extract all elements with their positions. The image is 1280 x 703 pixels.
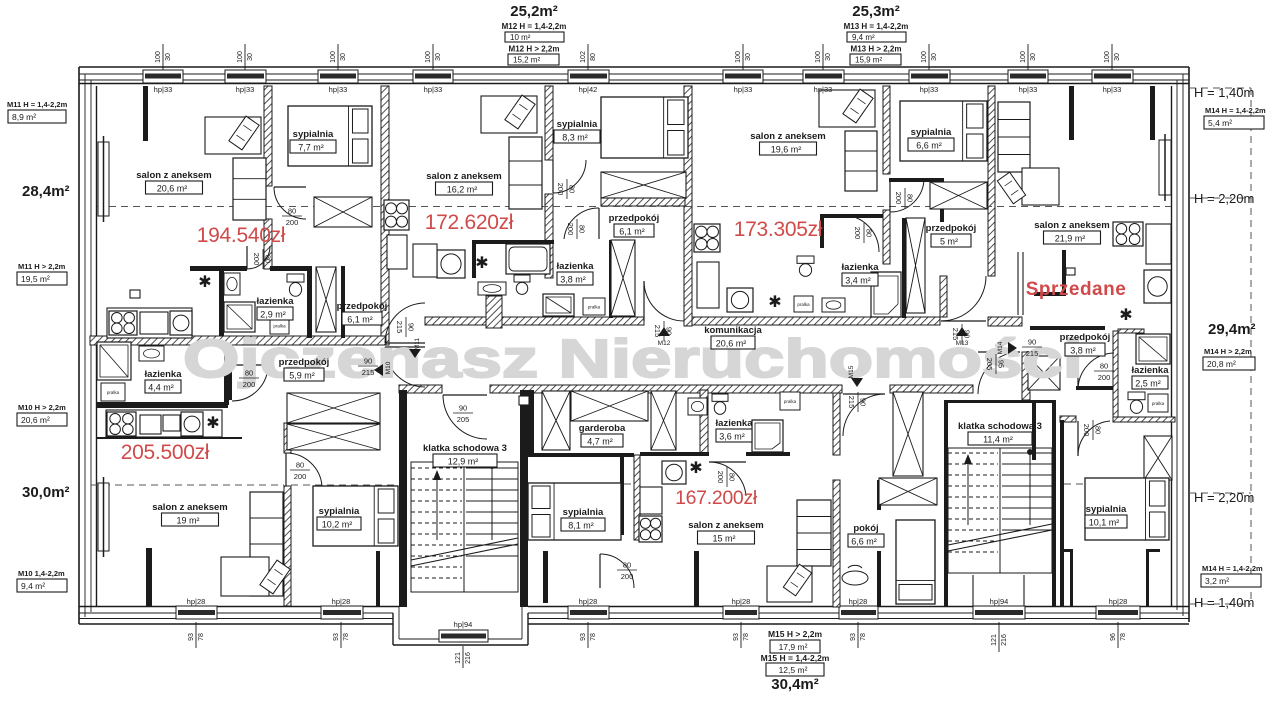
svg-text:hp|28: hp|28 — [732, 597, 751, 606]
svg-text:klatka schodowa 3: klatka schodowa 3 — [423, 443, 507, 454]
svg-text:90: 90 — [407, 323, 416, 331]
svg-text:5 m²: 5 m² — [940, 237, 958, 247]
svg-text:93: 93 — [733, 633, 740, 641]
svg-text:✱: ✱ — [475, 255, 488, 272]
svg-text:sypialnia: sypialnia — [293, 129, 334, 140]
svg-text:78: 78 — [743, 633, 750, 641]
svg-text:78: 78 — [860, 633, 867, 641]
svg-text:93: 93 — [188, 633, 195, 641]
svg-text:M13: M13 — [956, 340, 969, 347]
svg-text:8,9 m²: 8,9 m² — [12, 112, 36, 122]
svg-text:216: 216 — [465, 652, 472, 664]
svg-text:20,6 m²: 20,6 m² — [716, 339, 747, 349]
svg-text:5,4 m²: 5,4 m² — [1208, 118, 1232, 128]
svg-text:100: 100 — [425, 51, 432, 63]
svg-text:200: 200 — [252, 253, 261, 266]
svg-text:pralka: pralka — [588, 305, 601, 310]
svg-text:garderoba: garderoba — [579, 423, 626, 434]
svg-text:30: 30 — [247, 53, 254, 61]
svg-text:5,9 m²: 5,9 m² — [289, 371, 315, 381]
svg-text:✱: ✱ — [206, 415, 219, 432]
svg-text:78: 78 — [198, 633, 205, 641]
svg-text:salon z aneksem: salon z aneksem — [750, 131, 826, 142]
svg-text:102: 102 — [580, 51, 587, 63]
svg-text:205: 205 — [985, 358, 994, 371]
svg-text:30: 30 — [931, 53, 938, 61]
svg-text:30: 30 — [825, 53, 832, 61]
svg-text:hp|33: hp|33 — [814, 85, 833, 94]
svg-text:salon z aneksem: salon z aneksem — [426, 171, 502, 182]
svg-text:30: 30 — [435, 53, 442, 61]
svg-text:16,2 m²: 16,2 m² — [447, 185, 478, 195]
svg-text:200: 200 — [716, 471, 725, 484]
svg-text:M14 H = 1,4-2,2m: M14 H = 1,4-2,2m — [1202, 564, 1263, 573]
svg-text:11,4 m²: 11,4 m² — [983, 435, 1013, 445]
svg-text:10,2 m²: 10,2 m² — [322, 520, 353, 530]
svg-text:M11 H = 1,4-2,2m: M11 H = 1,4-2,2m — [7, 100, 68, 109]
svg-text:19,6 m²: 19,6 m² — [771, 145, 802, 155]
svg-text:hp|28: hp|28 — [332, 597, 351, 606]
svg-text:4,4 m²: 4,4 m² — [148, 383, 174, 393]
svg-text:H = 1,40m: H = 1,40m — [1194, 85, 1254, 100]
svg-text:6,6 m²: 6,6 m² — [916, 141, 942, 151]
svg-text:93: 93 — [580, 633, 587, 641]
svg-text:215: 215 — [847, 396, 856, 409]
svg-text:4,7 m²: 4,7 m² — [587, 437, 613, 447]
svg-text:sypialnia: sypialnia — [1086, 504, 1127, 515]
svg-text:25,2m²: 25,2m² — [510, 3, 558, 20]
svg-text:80: 80 — [906, 194, 915, 202]
svg-text:hp|33: hp|33 — [329, 85, 348, 94]
svg-text:80: 80 — [245, 369, 253, 378]
svg-text:205.500zł: 205.500zł — [121, 441, 210, 464]
svg-text:hp|42: hp|42 — [579, 85, 598, 94]
svg-text:pokój: pokój — [853, 523, 878, 534]
svg-text:2,9 m²: 2,9 m² — [260, 310, 286, 320]
svg-text:167.200zł: 167.200zł — [675, 487, 758, 509]
svg-text:200: 200 — [566, 223, 575, 236]
svg-text:salon z aneksem: salon z aneksem — [152, 502, 228, 513]
svg-text:121: 121 — [991, 634, 998, 646]
svg-text:6,1 m²: 6,1 m² — [619, 227, 645, 237]
svg-text:M13 H = 1,4-2,2m: M13 H = 1,4-2,2m — [844, 22, 909, 31]
svg-text:200: 200 — [294, 472, 307, 481]
svg-text:200: 200 — [243, 380, 256, 389]
svg-text:80: 80 — [264, 255, 273, 263]
svg-text:28,4m²: 28,4m² — [22, 183, 70, 200]
svg-text:20,6 m²: 20,6 m² — [157, 184, 188, 194]
svg-text:hp|28: hp|28 — [1109, 597, 1128, 606]
svg-text:łazienka: łazienka — [842, 262, 880, 273]
svg-text:100: 100 — [1104, 51, 1111, 63]
svg-text:200: 200 — [1082, 424, 1091, 437]
svg-text:M11 H > 2,2m: M11 H > 2,2m — [18, 262, 66, 271]
svg-text:sypialnia: sypialnia — [319, 506, 360, 517]
svg-text:30,4m²: 30,4m² — [771, 676, 819, 693]
svg-text:hp|28: hp|28 — [579, 597, 598, 606]
svg-text:80: 80 — [590, 53, 597, 61]
svg-text:hp|33: hp|33 — [920, 85, 939, 94]
svg-text:30: 30 — [165, 53, 172, 61]
svg-text:12,9 m²: 12,9 m² — [448, 457, 479, 467]
svg-text:łazienka: łazienka — [1132, 365, 1170, 376]
svg-text:100: 100 — [237, 51, 244, 63]
svg-text:90: 90 — [859, 398, 868, 406]
svg-text:80: 80 — [1100, 362, 1108, 371]
svg-text:✱: ✱ — [768, 294, 781, 311]
svg-text:172.620zł: 172.620zł — [425, 211, 514, 234]
svg-text:200: 200 — [1098, 373, 1111, 382]
svg-text:sypialnia: sypialnia — [911, 127, 952, 138]
svg-text:30: 30 — [1030, 53, 1037, 61]
svg-text:121: 121 — [455, 652, 462, 664]
svg-text:8,3 m²: 8,3 m² — [562, 133, 588, 143]
svg-text:łazienka: łazienka — [557, 261, 595, 272]
svg-text:100: 100 — [1020, 51, 1027, 63]
svg-text:30: 30 — [745, 53, 752, 61]
svg-text:216: 216 — [1001, 634, 1008, 646]
svg-text:M14: M14 — [997, 341, 1004, 354]
svg-text:194.540zł: 194.540zł — [197, 224, 286, 247]
svg-text:M10 1,4-2,2m: M10 1,4-2,2m — [18, 569, 65, 578]
svg-text:100: 100 — [735, 51, 742, 63]
svg-text:80: 80 — [568, 185, 577, 193]
svg-text:80: 80 — [865, 229, 874, 237]
svg-text:90: 90 — [1028, 338, 1036, 347]
svg-text:3,8 m²: 3,8 m² — [560, 275, 586, 285]
svg-text:80: 80 — [623, 561, 631, 570]
svg-text:✱: ✱ — [689, 460, 702, 477]
svg-text:klatka schodowa 3: klatka schodowa 3 — [958, 421, 1042, 432]
svg-text:21,9 m²: 21,9 m² — [1055, 234, 1086, 244]
svg-text:25,3m²: 25,3m² — [852, 3, 900, 20]
svg-text:205: 205 — [457, 415, 470, 424]
svg-text:215: 215 — [362, 368, 375, 377]
svg-text:✱: ✱ — [1119, 307, 1132, 324]
svg-text:hp|33: hp|33 — [734, 85, 753, 94]
svg-text:hp|28: hp|28 — [187, 597, 206, 606]
svg-text:3,6 m²: 3,6 m² — [719, 432, 745, 442]
svg-text:H = 2,20m: H = 2,20m — [1194, 191, 1254, 206]
svg-text:hp|33: hp|33 — [154, 85, 173, 94]
svg-text:M13 H > 2,2m: M13 H > 2,2m — [851, 45, 902, 54]
svg-text:komunikacja: komunikacja — [704, 325, 762, 336]
svg-text:80: 80 — [296, 461, 304, 470]
svg-text:2,5 m²: 2,5 m² — [1135, 379, 1161, 389]
svg-text:salon z aneksem: salon z aneksem — [1034, 220, 1110, 231]
svg-text:sypialnia: sypialnia — [557, 119, 598, 130]
svg-text:M15 H > 2,2m: M15 H > 2,2m — [768, 629, 823, 639]
svg-text:przedpokój: przedpokój — [279, 357, 330, 368]
svg-text:hp|94: hp|94 — [454, 620, 473, 629]
svg-text:80: 80 — [288, 207, 296, 216]
svg-text:200: 200 — [286, 218, 299, 227]
svg-text:M11: M11 — [414, 338, 421, 351]
svg-text:przedpokój: przedpokój — [1060, 332, 1111, 343]
svg-text:H = 1,40m: H = 1,40m — [1194, 595, 1254, 610]
svg-text:hp|33: hp|33 — [1103, 85, 1122, 94]
svg-text:3,4 m²: 3,4 m² — [845, 276, 871, 286]
svg-text:78: 78 — [343, 633, 350, 641]
svg-text:96: 96 — [1110, 633, 1117, 641]
svg-text:łazienka: łazienka — [716, 418, 754, 429]
svg-text:przedpokój: przedpokój — [926, 223, 977, 234]
svg-text:29,4m²: 29,4m² — [1208, 321, 1256, 338]
svg-text:✱: ✱ — [198, 274, 211, 291]
svg-text:hp|33: hp|33 — [236, 85, 255, 94]
svg-text:100: 100 — [330, 51, 337, 63]
svg-text:H = 2,20m: H = 2,20m — [1194, 490, 1254, 505]
svg-text:hp|33: hp|33 — [1019, 85, 1038, 94]
svg-text:19 m²: 19 m² — [176, 516, 199, 526]
svg-text:93: 93 — [333, 633, 340, 641]
svg-text:15,2 m²: 15,2 m² — [513, 56, 540, 65]
svg-text:6,1 m²: 6,1 m² — [347, 315, 373, 325]
svg-text:3,2 m²: 3,2 m² — [1205, 576, 1229, 586]
svg-text:10,1 m²: 10,1 m² — [1089, 518, 1120, 528]
svg-text:pralka: pralka — [784, 399, 797, 404]
svg-text:M12 H = 1,4-2,2m: M12 H = 1,4-2,2m — [502, 22, 567, 31]
svg-text:9,4 m²: 9,4 m² — [21, 581, 45, 591]
svg-text:pralka: pralka — [797, 302, 810, 307]
svg-text:M14 H = 1,4-2,2m: M14 H = 1,4-2,2m — [1205, 106, 1266, 115]
svg-text:95: 95 — [997, 360, 1006, 368]
svg-text:6,6 m²: 6,6 m² — [851, 537, 877, 547]
svg-text:215: 215 — [1026, 349, 1039, 358]
svg-text:100: 100 — [815, 51, 822, 63]
svg-text:200: 200 — [853, 227, 862, 240]
svg-text:20,8 m²: 20,8 m² — [1207, 359, 1236, 369]
svg-text:80: 80 — [1094, 426, 1103, 434]
svg-text:hp|28: hp|28 — [849, 597, 868, 606]
svg-text:przedpokój: przedpokój — [609, 213, 660, 224]
svg-text:przedpokój: przedpokój — [337, 301, 388, 312]
svg-text:pralka: pralka — [1152, 401, 1165, 406]
svg-text:M12: M12 — [658, 340, 671, 347]
svg-text:173.305zł: 173.305zł — [734, 218, 823, 241]
svg-text:93: 93 — [850, 633, 857, 641]
svg-text:3,8 m²: 3,8 m² — [1070, 346, 1096, 356]
svg-text:20,6 m²: 20,6 m² — [21, 415, 50, 425]
svg-text:9,4 m²: 9,4 m² — [852, 33, 875, 42]
svg-text:215: 215 — [395, 321, 404, 334]
svg-text:200: 200 — [621, 572, 634, 581]
svg-text:80: 80 — [578, 225, 587, 233]
svg-text:200: 200 — [894, 192, 903, 205]
svg-text:salon z aneksem: salon z aneksem — [688, 520, 764, 531]
svg-text:hp|94: hp|94 — [990, 597, 1009, 606]
svg-text:hp|33: hp|33 — [424, 85, 443, 94]
svg-text:7,7 m²: 7,7 m² — [298, 143, 324, 153]
svg-text:8,1 m²: 8,1 m² — [568, 521, 594, 531]
svg-text:M12 H > 2,2m: M12 H > 2,2m — [509, 45, 560, 54]
svg-text:10 m²: 10 m² — [510, 33, 531, 42]
svg-text:30,0m²: 30,0m² — [22, 484, 70, 501]
svg-text:30: 30 — [340, 53, 347, 61]
svg-text:90: 90 — [364, 357, 372, 366]
svg-text:M15 H = 1,4-2,2m: M15 H = 1,4-2,2m — [761, 653, 830, 663]
svg-text:pralka: pralka — [273, 324, 286, 329]
svg-text:78: 78 — [1120, 633, 1127, 641]
svg-text:sypialnia: sypialnia — [563, 507, 604, 518]
svg-text:90: 90 — [459, 404, 467, 413]
svg-text:łazienka: łazienka — [257, 296, 295, 307]
svg-text:200: 200 — [556, 183, 565, 196]
svg-text:12,5 m²: 12,5 m² — [779, 665, 808, 675]
svg-text:Sprzedane: Sprzedane — [1026, 279, 1127, 300]
svg-text:80: 80 — [728, 473, 737, 481]
svg-text:19,5 m²: 19,5 m² — [21, 274, 50, 284]
svg-text:M10: M10 — [385, 361, 392, 374]
svg-text:30: 30 — [1114, 53, 1121, 61]
svg-text:M15: M15 — [848, 365, 855, 378]
svg-text:100: 100 — [155, 51, 162, 63]
svg-text:salon z aneksem: salon z aneksem — [136, 170, 212, 181]
svg-text:15,9 m²: 15,9 m² — [855, 56, 882, 65]
svg-text:78: 78 — [590, 633, 597, 641]
svg-text:100: 100 — [921, 51, 928, 63]
svg-text:pralka: pralka — [107, 390, 120, 395]
svg-text:łazienka: łazienka — [145, 369, 183, 380]
svg-text:15 m²: 15 m² — [712, 534, 735, 544]
svg-text:17,9 m²: 17,9 m² — [779, 642, 808, 652]
svg-text:M10 H > 2,2m: M10 H > 2,2m — [18, 403, 66, 412]
svg-text:M14 H > 2,2m: M14 H > 2,2m — [1204, 347, 1252, 356]
